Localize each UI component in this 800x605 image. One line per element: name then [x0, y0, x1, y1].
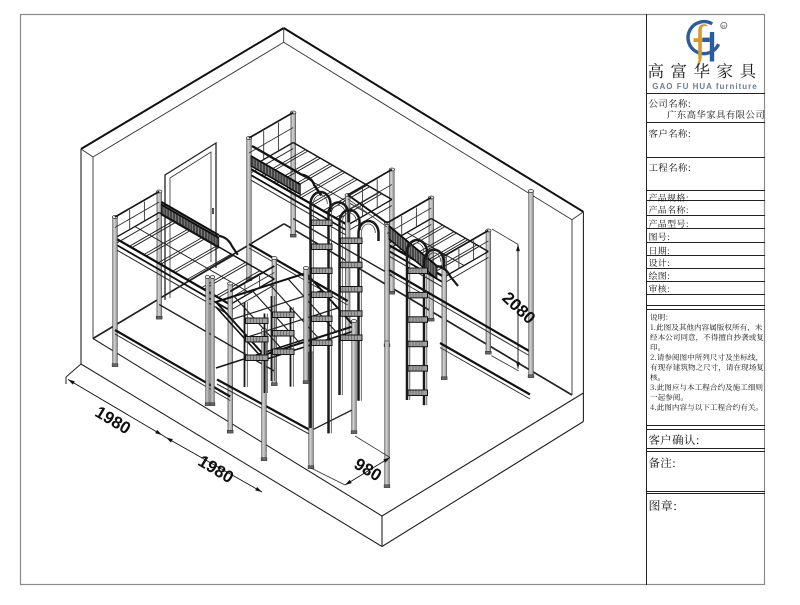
svg-text:高富华家具: 高富华家具 [648, 58, 763, 82]
svg-text:GAO FU HUA furniture: GAO FU HUA furniture [652, 82, 757, 91]
svg-text:R: R [722, 24, 726, 30]
